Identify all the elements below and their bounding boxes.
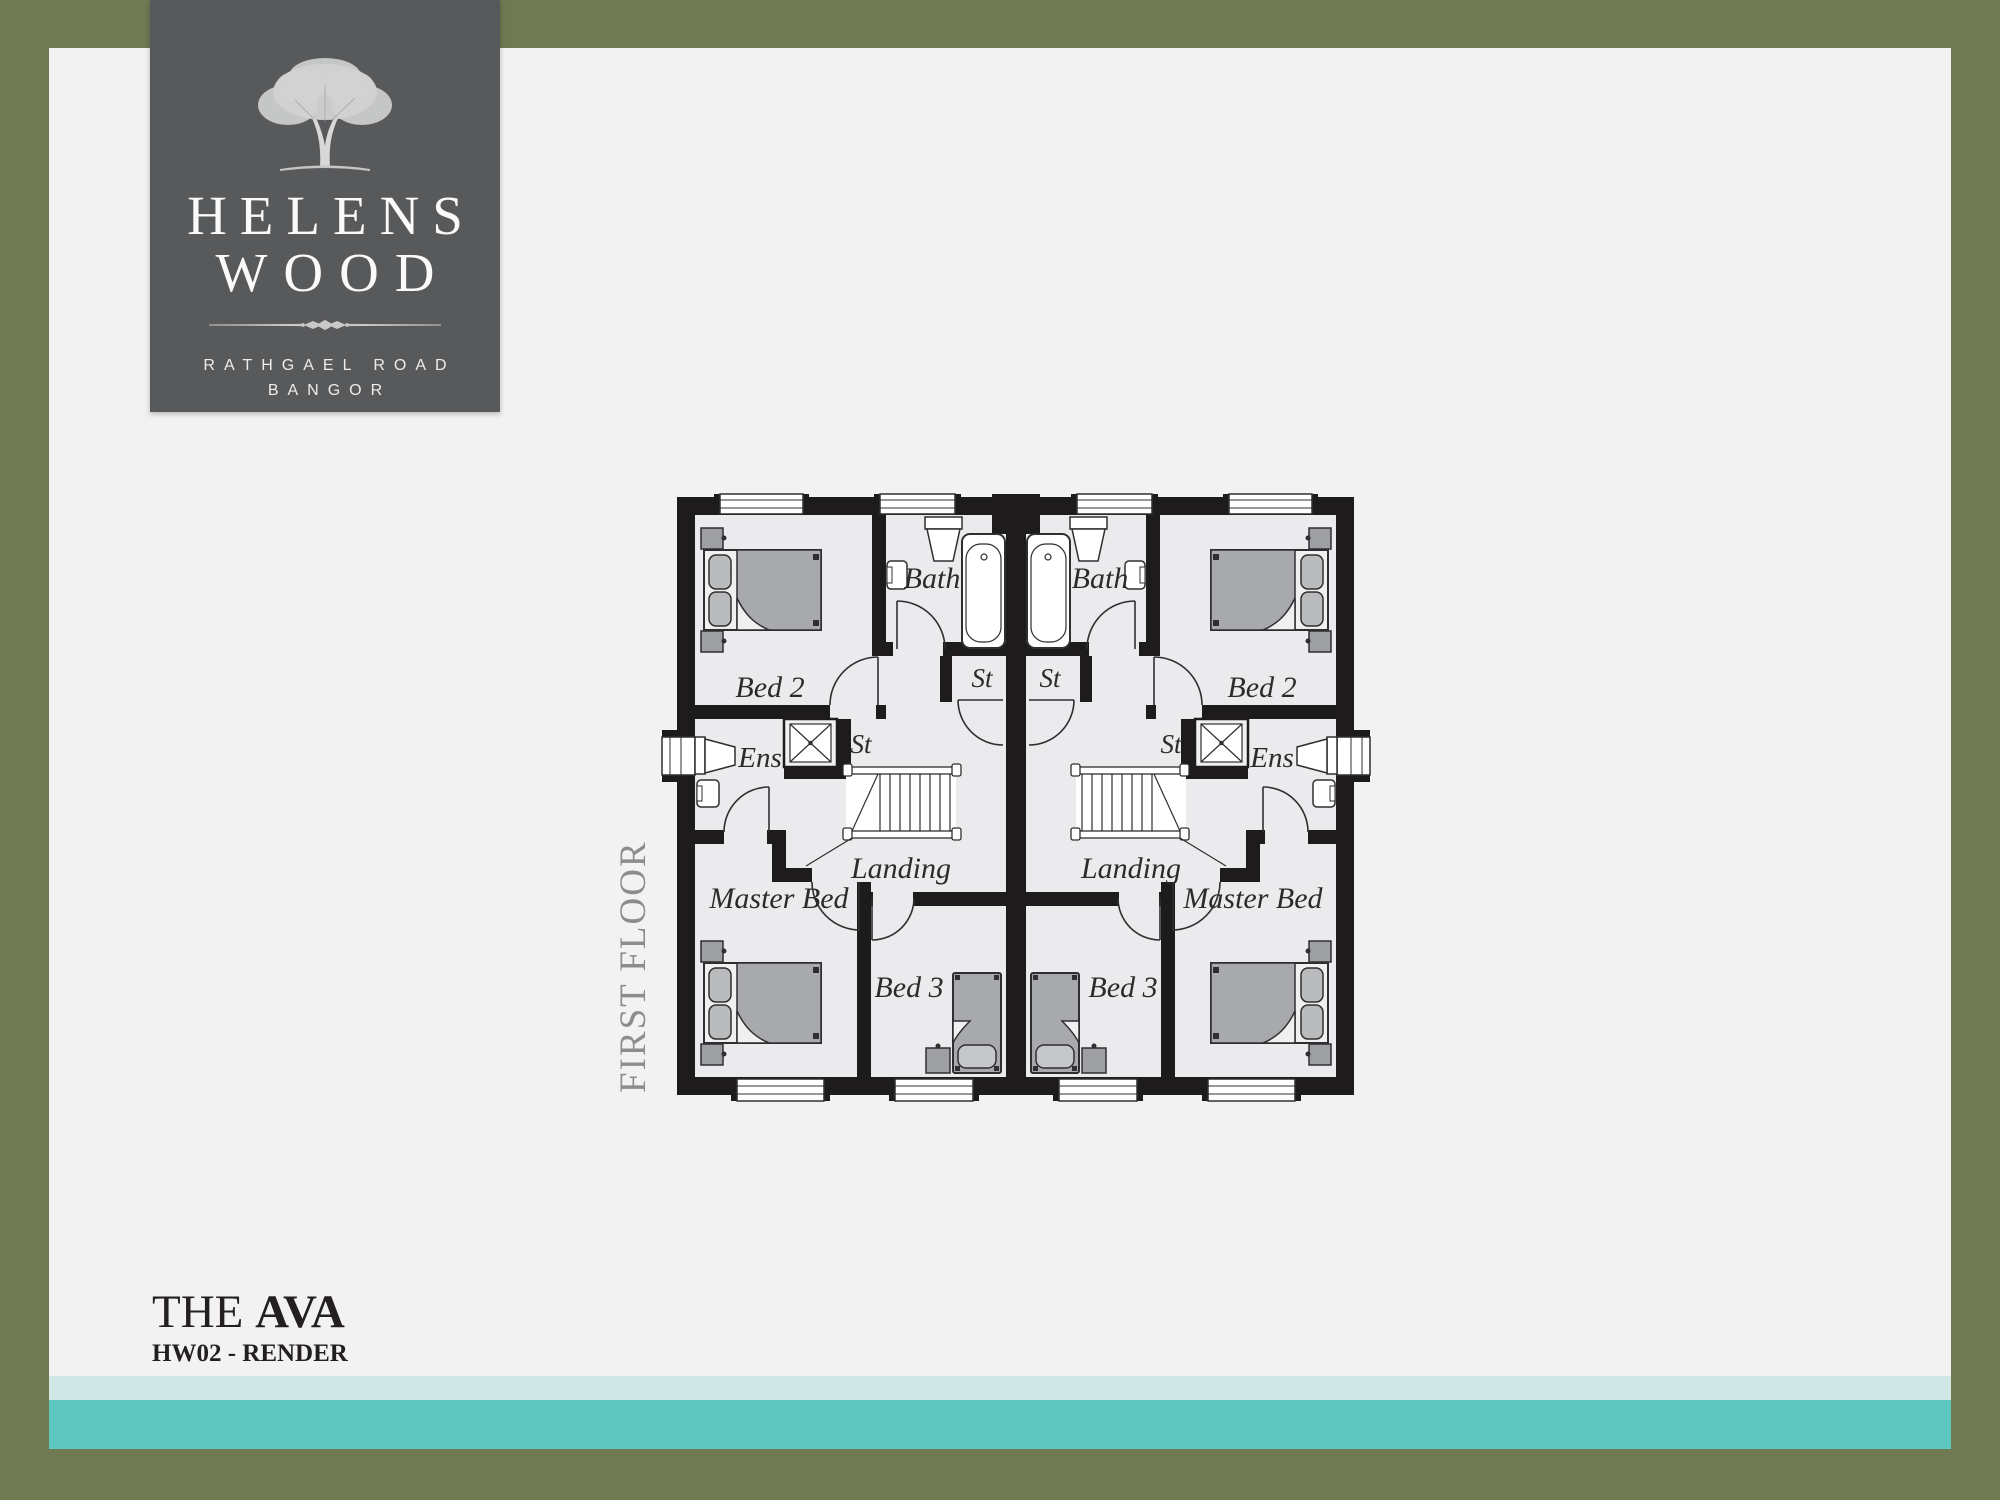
room-label-bed2-right: Bed 2 bbox=[1227, 671, 1296, 704]
room-label-store-left: St bbox=[971, 663, 994, 693]
chimney bbox=[992, 494, 1040, 534]
brochure-page: HELENS WOOD RATHGAEL ROAD BANGOR bbox=[0, 0, 2000, 1500]
room-label-store-right: St bbox=[1039, 663, 1062, 693]
floor-level-label: FIRST FLOOR bbox=[613, 840, 654, 1093]
teal-stripe bbox=[49, 1400, 1951, 1449]
brand-address-line2: BANGOR bbox=[150, 382, 500, 400]
room-label-bed2-left: Bed 2 bbox=[735, 671, 804, 704]
floor-plan: Bed 2 Bath St Ens St Master Bed Landing … bbox=[600, 460, 1420, 1130]
room-label-bed3-left: Bed 3 bbox=[874, 971, 943, 1004]
brand-name-line2: WOOD bbox=[150, 243, 500, 304]
room-label-landing-left: Landing bbox=[850, 852, 951, 885]
tree-logo-icon bbox=[220, 50, 430, 175]
room-label-ensuite-left: Ens bbox=[737, 742, 782, 774]
brand-name-line1: HELENS bbox=[150, 188, 500, 243]
room-label-master-left: Master Bed bbox=[708, 882, 849, 915]
brand-address-line1: RATHGAEL ROAD bbox=[150, 357, 500, 375]
room-label-store2-right: St bbox=[1160, 729, 1183, 759]
title-block: THE AVA HW02 - RENDER bbox=[152, 1288, 348, 1368]
house-title-prefix: THE bbox=[152, 1286, 243, 1338]
room-label-master-right: Master Bed bbox=[1182, 882, 1323, 915]
divider-ornament-icon bbox=[205, 318, 445, 332]
logo-box: HELENS WOOD RATHGAEL ROAD BANGOR bbox=[150, 0, 500, 412]
room-label-store2-left: St bbox=[850, 729, 873, 759]
room-label-bed3-right: Bed 3 bbox=[1088, 971, 1157, 1004]
house-title: THE AVA bbox=[152, 1288, 348, 1337]
house-title-name: AVA bbox=[255, 1286, 345, 1338]
light-teal-stripe bbox=[49, 1376, 1951, 1400]
room-label-ensuite-right: Ens bbox=[1249, 742, 1294, 774]
room-label-landing-right: Landing bbox=[1080, 852, 1181, 885]
plot-code: HW02 - RENDER bbox=[152, 1340, 348, 1368]
room-label-bath-right: Bath bbox=[1072, 562, 1129, 595]
room-label-bath-left: Bath bbox=[904, 562, 961, 595]
